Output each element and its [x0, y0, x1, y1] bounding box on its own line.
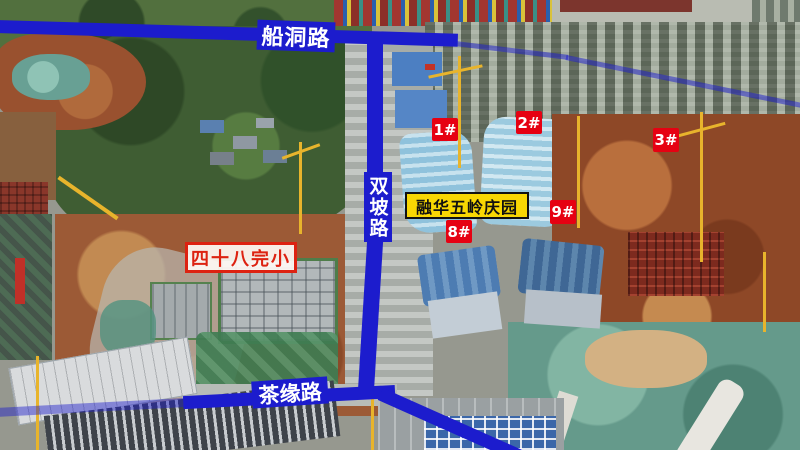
red-formwork-platform: [628, 232, 724, 296]
road-label-shuangpo: 双坡路: [364, 172, 392, 242]
sand-patch: [585, 330, 707, 388]
tower-crane: [299, 142, 302, 234]
road-label-chuandong: 船洞路: [257, 20, 336, 53]
village-house: [200, 120, 224, 133]
crane-counterweight: [425, 64, 435, 70]
tower-8-podium: [428, 291, 503, 338]
red-vertical-banner: [15, 258, 25, 304]
building-badge-2: 2#: [516, 111, 542, 134]
debris-pile: [12, 54, 90, 100]
tower-crane: [371, 392, 374, 450]
building-badge-1: 1#: [432, 118, 458, 141]
scaffolded-tower: [0, 214, 52, 360]
tower-9-podium: [524, 289, 602, 328]
school-label: 四十八完小: [185, 242, 297, 273]
tower-crane: [763, 252, 766, 332]
road-label-chayuan: 茶缘路: [251, 376, 329, 408]
building-badge-9: 9#: [550, 200, 576, 224]
tower-crane: [577, 116, 580, 228]
village-house: [256, 118, 274, 128]
village-house: [210, 152, 234, 165]
village-house: [233, 136, 257, 149]
building-badge-8: 8#: [446, 220, 472, 243]
dark-red-buildings: [560, 0, 692, 12]
tower-crane: [700, 112, 703, 262]
building-badge-3: 3#: [653, 128, 679, 152]
tower-crane: [36, 356, 39, 450]
project-name-banner: 融华五岭庆园: [405, 192, 529, 219]
aerial-photo: 船洞路 双坡路 茶缘路 融华五岭庆园 四十八完小 1# 2# 3# 9# 8#: [0, 0, 800, 450]
tower-crane: [458, 56, 461, 168]
